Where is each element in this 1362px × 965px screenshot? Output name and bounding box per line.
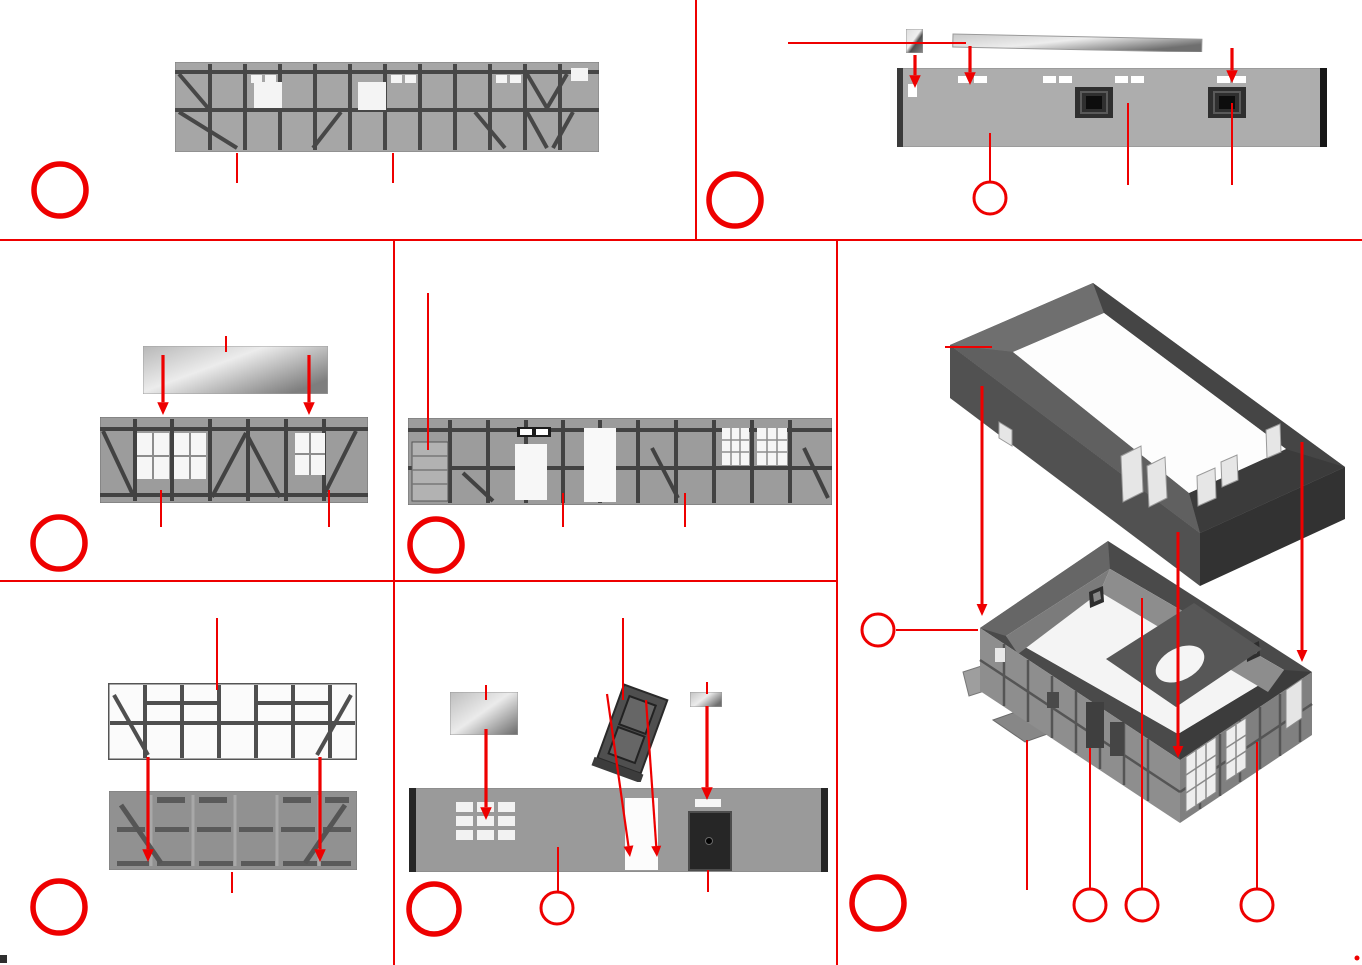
side-door-opening (1086, 702, 1104, 748)
small-glazing-pane (906, 29, 923, 53)
side-window-opening (1110, 722, 1124, 756)
timber-frame-photo (108, 683, 357, 760)
transom-slot (695, 799, 721, 807)
door-leaf-piece (582, 682, 682, 782)
panel-middle-center (394, 240, 837, 581)
scan-artifact (0, 955, 7, 963)
small-glazing-pane (690, 692, 722, 707)
panel-top-right (696, 0, 1362, 240)
assembly-views (837, 240, 1362, 965)
instruction-sheet (0, 0, 1362, 965)
panel-middle-left (0, 240, 394, 581)
wall-slot (995, 648, 1005, 662)
entrance-wall-photo (409, 788, 828, 872)
upper-storey-assembly-photo (950, 283, 1345, 586)
wall-window-dark (1047, 692, 1059, 708)
rear-wall-photo (897, 68, 1327, 147)
panel-right-assembly (837, 240, 1362, 965)
glazing-strip (951, 30, 1204, 52)
long-wall-photo (408, 418, 832, 505)
ground-floor-assembly-photo (963, 541, 1312, 823)
upper-wall-strip-photo (175, 62, 599, 152)
glazing-pane (450, 692, 518, 735)
tilted-door (591, 684, 670, 782)
panel-bottom-left (0, 581, 394, 965)
rear-wall-panel-photo (109, 791, 357, 870)
panel-bottom-center (394, 581, 837, 965)
glazing-strip (143, 346, 328, 394)
nine-pane-window-grid (456, 802, 515, 840)
gable-wall-photo (100, 417, 368, 503)
doorway-opening (625, 798, 658, 870)
panel-top-left (0, 0, 696, 240)
dark-door (689, 812, 731, 870)
